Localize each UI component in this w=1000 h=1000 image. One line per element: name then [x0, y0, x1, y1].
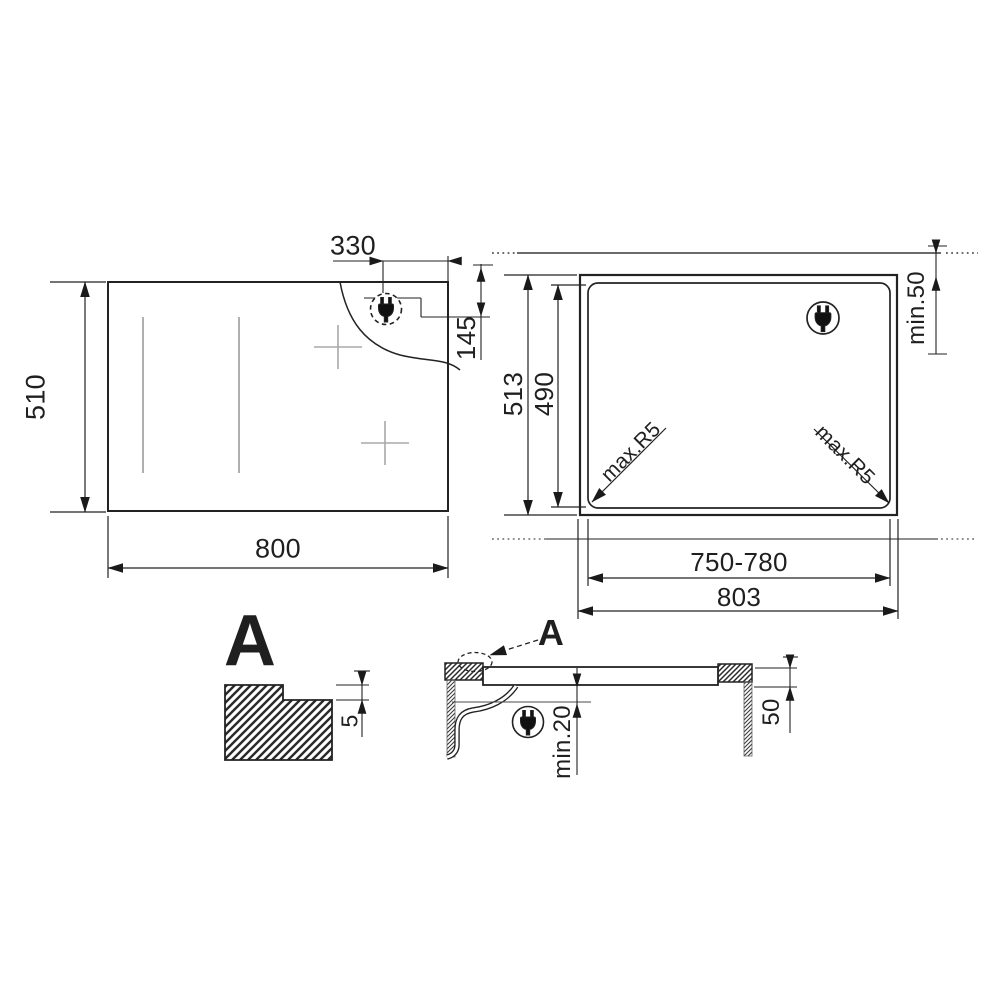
top-view-linework	[50, 256, 493, 578]
dim-label-cutout-height: 490	[531, 372, 557, 416]
diagram-linework	[0, 0, 1000, 1000]
detail-a-callout-leader	[490, 640, 538, 655]
dim-label-outer-height: 513	[500, 372, 526, 416]
dim-label-wall-clearance: min.50	[905, 271, 929, 345]
worktop-cutout-inner	[588, 283, 890, 508]
dim-330	[333, 256, 460, 293]
cabinet-left-panel	[447, 680, 455, 757]
dim-label-outer-width: 803	[717, 584, 761, 610]
worktop-left-block	[445, 663, 483, 680]
dim-min50	[928, 242, 947, 354]
dim-label-side-clearance: 50	[760, 698, 784, 725]
hob-zone-divider-lines	[143, 317, 239, 473]
break-line-curve	[340, 282, 460, 370]
power-cable	[447, 686, 516, 757]
worktop-section-step	[225, 685, 332, 760]
hob-body-section	[483, 667, 718, 685]
dim-510	[50, 282, 106, 512]
dim-label-cutout-width: 750-780	[690, 549, 788, 575]
dim-label-step-depth: 5	[339, 714, 362, 727]
dim-label-hob-width: 800	[255, 536, 301, 563]
side-view-detail-ref: A	[538, 615, 564, 651]
worktop-right-block	[718, 664, 752, 682]
dim-label-clearance-below: min.20	[551, 705, 575, 779]
power-plug-icon	[371, 294, 402, 325]
dim-label-plug-offset: 330	[330, 233, 376, 260]
side-view-linework	[445, 640, 798, 775]
power-plug-icon	[807, 302, 839, 334]
dim-label-hob-height: 510	[23, 374, 50, 420]
power-plug-icon	[513, 707, 544, 738]
worktop-cutout-outer	[580, 275, 897, 515]
hob-center-cross-marks	[314, 325, 409, 465]
cabinet-right-panel	[744, 682, 752, 756]
installation-diagram: 330 145 510 800 513 490 min.50 max.R5 ma…	[0, 0, 1000, 1000]
dim-label-plug-depth: 145	[453, 316, 479, 360]
detail-a-title: A	[224, 605, 276, 677]
